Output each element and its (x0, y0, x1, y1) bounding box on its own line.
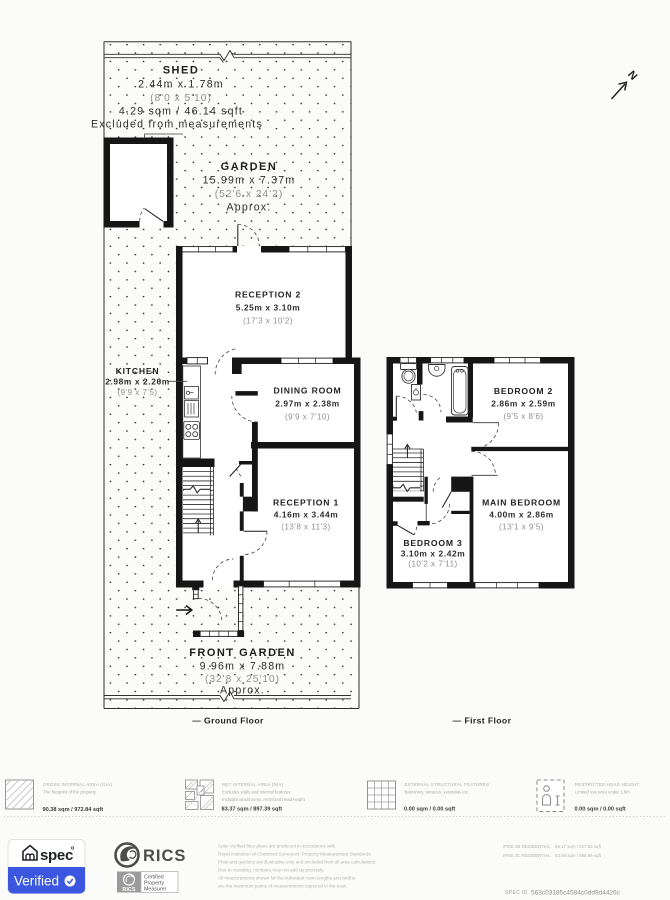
svg-text:Due to rounding, numbers may n: Due to rounding, numbers may not add up … (218, 868, 324, 873)
svg-text:(13'1 x 9'5): (13'1 x 9'5) (499, 523, 544, 532)
svg-text:83.48 sqm / 898.56 sqft: 83.48 sqm / 898.56 sqft (555, 853, 602, 858)
svg-text:5.25m x 3.10m: 5.25m x 3.10m (236, 303, 301, 313)
svg-text:Balconies, terraces, verandas: Balconies, terraces, verandas etc. (405, 790, 470, 795)
svg-text:All measurements shown for the: All measurements shown for the individua… (218, 876, 356, 881)
svg-text:RICS: RICS (143, 847, 186, 865)
svg-text:RICS: RICS (122, 887, 135, 893)
svg-text:(17'3 x 10'2): (17'3 x 10'2) (243, 317, 293, 326)
svg-text:Approx.: Approx. (227, 202, 272, 214)
svg-text:EXTERNAL STRUCTURAL FEATURES: EXTERNAL STRUCTURAL FEATURES (405, 782, 490, 787)
svg-text:3.10m x 2.42m: 3.10m x 2.42m (401, 549, 466, 559)
svg-text:spec: spec (40, 847, 73, 864)
svg-text:0.00 sqm / 0.00 sqft: 0.00 sqm / 0.00 sqft (575, 807, 626, 813)
svg-text:86.17 sqm / 927.53 sqft: 86.17 sqm / 927.53 sqft (555, 844, 602, 849)
svg-text:(10'2 x 7'11): (10'2 x 7'11) (408, 560, 457, 569)
svg-text:NET INTERNAL AREA (NIA): NET INTERNAL AREA (NIA) (222, 782, 284, 787)
svg-text:KITCHEN: KITCHEN (116, 366, 160, 376)
svg-text:Excludes walls and internal fe: Excludes walls and internal features (222, 790, 291, 795)
svg-text:Approx.: Approx. (220, 685, 265, 697)
svg-text:MAIN BEDROOM: MAIN BEDROOM (482, 498, 561, 508)
svg-text:90.38 sqm / 972.84 sqft: 90.38 sqm / 972.84 sqft (43, 807, 104, 813)
svg-text:15.99m x 7.37m: 15.99m x 7.37m (203, 175, 296, 187)
svg-text:DINING ROOM: DINING ROOM (274, 386, 342, 396)
svg-text:4.00m x 2.86m: 4.00m x 2.86m (489, 510, 554, 520)
svg-text:4.29 sqm / 46.14 sqft: 4.29 sqm / 46.14 sqft (119, 106, 243, 118)
svg-text:Royal Institution of Chartered: Royal Institution of Chartered Surveyors… (218, 852, 372, 857)
svg-text:83.37 sqm / 897.39 sqft: 83.37 sqm / 897.39 sqft (222, 807, 283, 813)
svg-text:(52'6 x 24'2): (52'6 x 24'2) (215, 189, 283, 200)
svg-text:(8'0 x 5'10): (8'0 x 5'10) (150, 93, 212, 104)
svg-text:FRONT GARDEN: FRONT GARDEN (189, 647, 296, 659)
svg-text:SHED: SHED (163, 65, 200, 77)
svg-text:(9'5 x 8'6): (9'5 x 8'6) (503, 412, 543, 421)
svg-text:— First Floor: — First Floor (453, 716, 512, 726)
svg-text:(13'8 x 11'3): (13'8 x 11'3) (281, 523, 330, 532)
svg-text:BEDROOM 3: BEDROOM 3 (403, 538, 462, 548)
svg-text:Plots and gardens are illustra: Plots and gardens are illustrative only … (218, 860, 376, 865)
svg-text:Spec Verified floor plans are: Spec Verified floor plans are produced i… (218, 844, 336, 849)
svg-text:563c03185c4584c0dd9d4426c: 563c03185c4584c0dd9d4426c (531, 890, 621, 897)
svg-text:are the maximum points of meas: are the maximum points of measurements c… (218, 884, 348, 889)
svg-text:9.96m x 7.88m: 9.96m x 7.88m (200, 661, 286, 673)
svg-text:Verified: Verified (14, 874, 59, 889)
svg-text:IPMS 2B RESIDENTIAL: IPMS 2B RESIDENTIAL (503, 844, 551, 849)
svg-text:The footprint of the property: The footprint of the property (43, 790, 97, 795)
svg-text:0.00 sqm / 0.00 sqft: 0.00 sqm / 0.00 sqft (404, 807, 455, 813)
svg-text:IPMS 3C RESIDENTIAL: IPMS 3C RESIDENTIAL (503, 853, 551, 858)
svg-text:Measurer: Measurer (144, 887, 167, 893)
svg-text:RECEPTION 1: RECEPTION 1 (273, 498, 339, 508)
svg-text:GROSS INTERNAL AREA (GIA): GROSS INTERNAL AREA (GIA) (43, 782, 112, 787)
svg-text:(9'9 x 7'10): (9'9 x 7'10) (285, 413, 330, 422)
svg-text:(9'9 x 7'5): (9'9 x 7'5) (117, 388, 157, 397)
svg-text:BEDROOM 2: BEDROOM 2 (494, 386, 553, 396)
svg-text:RECEPTION 2: RECEPTION 2 (235, 290, 301, 300)
svg-text:— Ground Floor: — Ground Floor (192, 716, 264, 726)
svg-text:2.44m x 1.78m: 2.44m x 1.78m (138, 79, 224, 91)
svg-text:(32'8 x 25'10): (32'8 x 25'10) (205, 674, 280, 685)
svg-text:RESTRICTED HEAD HEIGHT: RESTRICTED HEAD HEIGHT (575, 782, 640, 787)
svg-text:2.86m x 2.59m: 2.86m x 2.59m (491, 399, 556, 409)
svg-text:Excluded from measurements: Excluded from measurements (91, 119, 263, 131)
svg-text:2.98m x 2.26m: 2.98m x 2.26m (105, 377, 170, 387)
svg-text:Limited use area under 1.5m: Limited use area under 1.5m (575, 790, 630, 795)
svg-text:SPEC ID: SPEC ID (505, 890, 528, 896)
svg-text:Includes washrooms, restricted: Includes washrooms, restricted head heig… (222, 797, 306, 802)
svg-text:4.16m x 3.44m: 4.16m x 3.44m (274, 510, 339, 520)
svg-text:GARDEN: GARDEN (221, 161, 278, 173)
svg-text:2.97m x 2.38m: 2.97m x 2.38m (275, 399, 340, 409)
